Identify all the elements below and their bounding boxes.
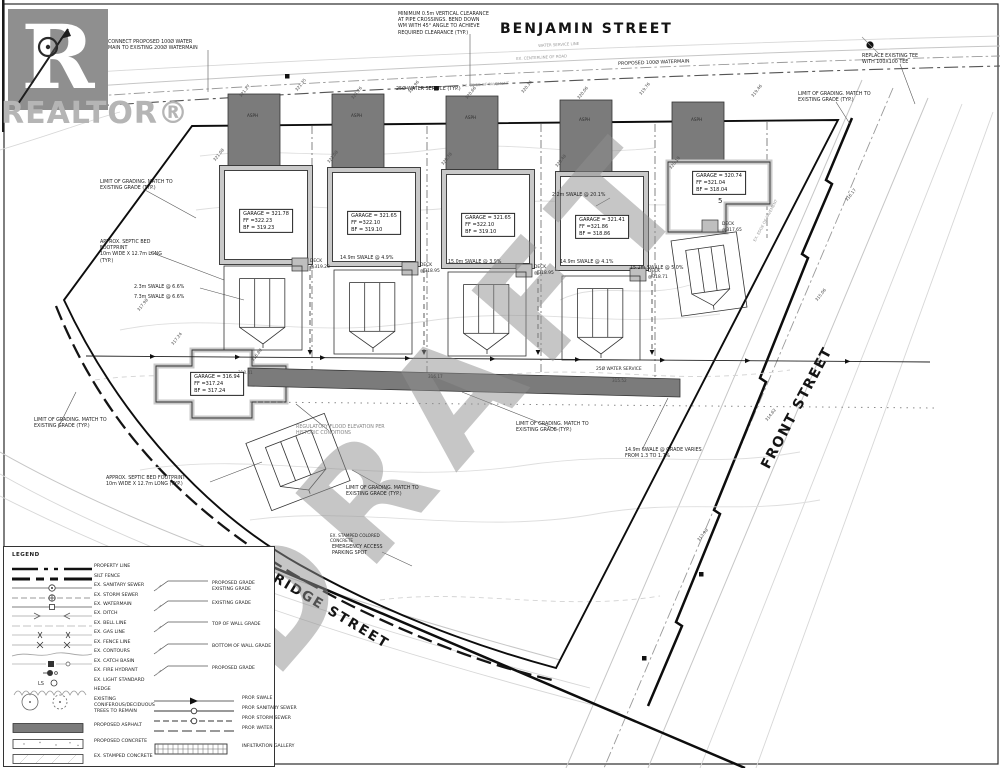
- legend-grade-leader: [150, 640, 210, 660]
- note-regulatory-flood: REGULATORY FLOOD ELEVATION PER HISTORIC …: [296, 425, 385, 437]
- legend-grade-leader: [150, 597, 210, 617]
- legend-label-ls: EX. LIGHT STANDARD: [94, 678, 144, 684]
- note-vertical-clearance: MINIMUM 0.5m VERTICAL CLEARANCE AT PIPE …: [398, 12, 489, 37]
- legend-label-cb: EX. CATCH BASIN: [94, 659, 134, 665]
- note-limit-grading-3: LIMIT OF GRADING. MATCH TO EXISTING GRAD…: [516, 422, 589, 434]
- legend-grade-leader: [150, 662, 210, 682]
- swale-arrow: [660, 358, 666, 363]
- legend-grade-label: PROPOSED GRADE EXISTING GRADE: [212, 581, 255, 592]
- legend-label-fence: EX. FENCE LINE: [94, 640, 131, 646]
- legend-label-contours: EX. CONTOURS: [94, 649, 130, 655]
- note-swale-5: 2.2m SWALE @ 20.1%: [552, 193, 605, 199]
- legend-label-property: PROPERTY LINE: [94, 564, 130, 570]
- legend-grade-leader: [150, 577, 210, 597]
- legend-symbol-trees: [12, 693, 92, 715]
- note-emergency-access: EMERGENCY ACCESS PARKING SPOT: [332, 545, 383, 557]
- legend-label-trees: EXISTING CONIFEROUS/DECIDUOUS TREES TO R…: [94, 697, 155, 715]
- swale-arrow: [150, 354, 156, 359]
- legend-symbol-stamped: [12, 750, 92, 768]
- swale-arrow: [745, 358, 751, 363]
- realtor-wordmark: REALTOR®: [1, 96, 189, 131]
- street-label-benjamin: BENJAMIN STREET: [500, 21, 673, 37]
- legend-label-concrete: PROPOSED CONCRETE: [94, 739, 147, 745]
- deck-label-5: DECK @317.65: [722, 222, 742, 233]
- note-swale-a: 2.3m SWALE @ 6.6%: [134, 285, 184, 291]
- deck-label-4: DECK @318.71: [648, 269, 668, 280]
- note-swale-3: 14.9m SWALE @ 4.1%: [560, 260, 613, 266]
- house-label-4: GARAGE = 321.41 FF =321.86 BF = 318.86: [575, 215, 629, 239]
- legend-label-ditch: EX. DITCH: [94, 611, 118, 617]
- spot-elevation: 315.52: [612, 378, 627, 383]
- spot-elevation: 316.17: [428, 374, 443, 379]
- lot-number-5: 5: [718, 197, 722, 206]
- deck-label-3: DECK @318.95: [534, 265, 554, 276]
- note-stamped-concrete: EX. STAMPED COLORED CONCRETE: [330, 533, 380, 544]
- note-replace-tee: REPLACE EXISTING TEE WITH 100X100 TEE: [862, 54, 918, 66]
- note-connect-watermain: CONNECT PROPOSED 100Ø WATER MAIN TO EXIS…: [108, 40, 198, 52]
- label-asph-5: ASPH: [691, 117, 702, 122]
- legend-grade-label: PROPOSED GRADE: [212, 666, 255, 672]
- legend-grade-label: TOP OF WALL GRADE: [212, 622, 261, 628]
- swale-arrow: [320, 355, 326, 360]
- note-limit-grading-5: LIMIT OF GRADING. MATCH TO EXISTING GRAD…: [346, 486, 419, 498]
- note-limit-grading-4: LIMIT OF GRADING. MATCH TO EXISTING GRAD…: [34, 418, 107, 430]
- house-label-6: GARAGE = 316.94 FF =317.24 BF = 317.24: [190, 372, 244, 396]
- legend-label-gas: EX. GAS LINE: [94, 630, 125, 636]
- label-water-service-strip: 25Ø WATER SERVICE: [596, 367, 642, 373]
- legend-grade-leader: [150, 618, 210, 638]
- legend-panel: LEGEND PROPERTY LINESILT FENCEEX. SANITA…: [3, 546, 275, 767]
- legend-label-storm: EX. STORM SEWER: [94, 593, 138, 599]
- legend-label-sansew: EX. SANITARY SEWER: [94, 583, 144, 589]
- legend-grade-label: BOTTOM OF WALL GRADE: [212, 644, 271, 650]
- legend-label-bell: EX. BELL LINE: [94, 621, 127, 627]
- legend-label-silt: SILT FENCE: [94, 574, 120, 580]
- house-label-1: GARAGE = 321.78 FF =322.23 BF = 319.23: [239, 209, 293, 233]
- legend-symbol-gallery: [154, 740, 234, 759]
- legend-title: LEGEND: [12, 552, 40, 558]
- house-label-3: GARAGE = 321.65 FF =322.10 BF = 319.10: [461, 213, 515, 237]
- note-swale-2: 15.0m SWALE @ 3.9%: [448, 260, 501, 266]
- note-limit-grading-1: LIMIT OF GRADING. MATCH TO EXISTING GRAD…: [100, 180, 173, 192]
- house-label-2: GARAGE = 321.65 FF =322.10 BF = 319.10: [347, 211, 401, 235]
- legend-label-psan: PROP. SANITARY SEWER: [242, 706, 297, 711]
- legend-label-pwater: PROP. WATER: [242, 726, 273, 731]
- legend-label-stamped: EX. STAMPED CONCRETE: [94, 754, 153, 760]
- legend-label-hyd: EX. FIRE HYDRANT: [94, 668, 138, 674]
- swale-downarrow: [650, 350, 655, 355]
- legend-grade-label: EXISTING GRADE: [212, 601, 251, 607]
- label-asph-3: ASPH: [465, 115, 476, 120]
- deck-label-2: DECK @318.95: [420, 263, 440, 274]
- note-water-service-typ: 25Ø WATER SERVICE (TYP.): [396, 87, 461, 93]
- legend-label-hedge: HEDGE: [94, 687, 111, 693]
- note-septic-bed-1: APPROX. SEPTIC BED FOOTPRINT 10m WIDE X …: [100, 240, 162, 265]
- septic-bed-1: [224, 266, 302, 350]
- label-asph-4: ASPH: [579, 117, 590, 122]
- legend-symbol-pwater: [154, 722, 234, 741]
- note-swale-1: 14.9m SWALE @ 4.9%: [340, 256, 393, 262]
- realtor-logo: R: [8, 9, 108, 110]
- legend-label-pswale: PROP. SWALE: [242, 696, 272, 701]
- legend-label-pstorm: PROP. STORM SEWER: [242, 716, 291, 721]
- note-limit-grading-2: LIMIT OF GRADING. MATCH TO EXISTING GRAD…: [798, 92, 871, 104]
- legend-label-asphalt: PROPOSED ASPHALT: [94, 723, 142, 729]
- site-plan-sheet: R REALTOR® BENJAMIN STREET FRONT STREET …: [0, 0, 1002, 768]
- label-asph-2: ASPH: [351, 113, 362, 118]
- swale-arrow: [845, 359, 851, 364]
- label-asph-1: ASPH: [247, 113, 258, 118]
- north-arrow-icon: [8, 9, 108, 110]
- legend-label-wm: EX. WATERMAIN: [94, 602, 132, 608]
- legend-label-gallery: INFILTRATION GALLERY: [242, 744, 294, 749]
- deck-label-1: DECK @319.23: [310, 259, 330, 270]
- house-label-5: GARAGE = 320.74 FF =321.04 BF = 318.04: [692, 171, 746, 195]
- note-septic-bed-2: APPROX. SEPTIC BED FOOTPRINT 10m WIDE X …: [106, 476, 185, 488]
- note-swale-varies: 14.9m SWALE @ GRADE VARIES FROM 1.3 TO 1…: [625, 448, 702, 460]
